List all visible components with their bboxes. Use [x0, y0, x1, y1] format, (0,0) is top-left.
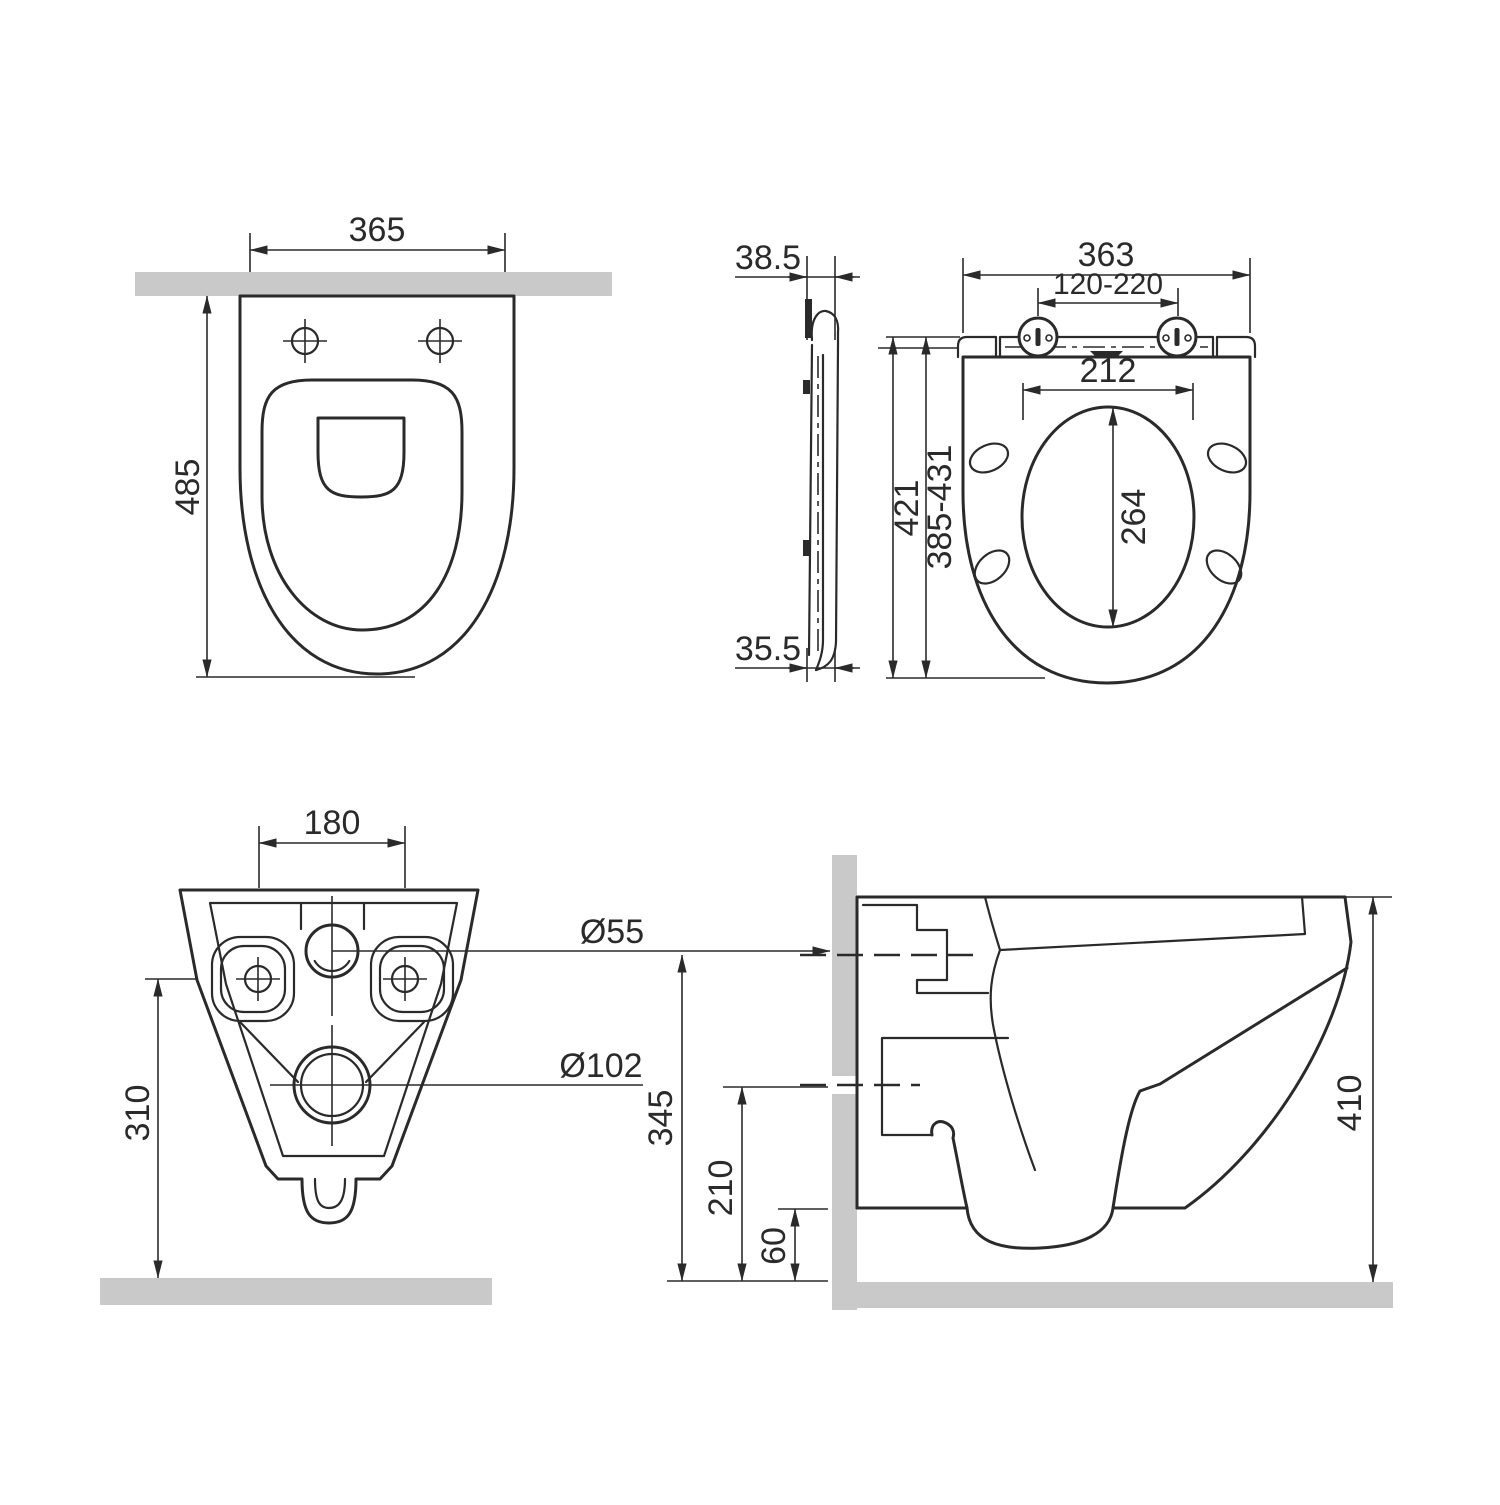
right-hinge-cap-icon: [1158, 318, 1196, 356]
dim-seat-bottom-thickness: 35.5: [735, 630, 860, 682]
drawing-canvas: 365 485 38.5: [0, 0, 1500, 1500]
floor-surface-left: [100, 1278, 492, 1305]
dim-adjustable-length-label: 385-431: [921, 445, 959, 570]
dim-outlet-axis-height-label: 210: [702, 1160, 740, 1217]
left-fixing-point-icon: [283, 319, 327, 363]
right-bolt-hole-icon: [383, 957, 427, 1001]
bowl-top-view: 365 485: [135, 211, 612, 677]
dim-height-above-floor: 310: [119, 979, 196, 1278]
dim-hinge-span-label: 120-220: [1053, 268, 1163, 301]
side-front-underside: [1113, 897, 1351, 1208]
dim-seat-bottom-thickness-label: 35.5: [735, 630, 801, 668]
seat-top-view: 363 120-220: [878, 236, 1255, 683]
lid-recess-oval: [1022, 407, 1194, 627]
dim-opening-depth-label: 264: [1115, 489, 1153, 546]
hinge-profile: [812, 311, 838, 344]
seat-side-profile-view: 38.5 35.5: [735, 239, 860, 682]
trap-outline: [932, 968, 1347, 1248]
dim-seat-top-thickness-label: 38.5: [735, 239, 801, 277]
left-hinge-cap-icon: [1019, 318, 1057, 356]
dim-inlet-axis-height-label: 345: [642, 1090, 680, 1147]
left-bolt-hole-icon: [236, 957, 280, 1001]
lid-outer-edge: [816, 344, 838, 670]
dim-seat-top-thickness: 38.5: [735, 239, 860, 340]
bowl-back-wall: [985, 897, 1035, 1170]
rim-section-lines: [1000, 897, 1305, 950]
dim-fixing-centres-label: 180: [304, 804, 361, 842]
dim-hinge-span: 120-220: [1038, 268, 1178, 316]
dim-overall-height: 410: [1331, 897, 1373, 1282]
dim-overall-height-label: 410: [1331, 1075, 1369, 1132]
right-hinge-tab: [1217, 337, 1255, 357]
foot-inner-arc: [315, 1179, 345, 1208]
right-fixing-point-icon: [418, 319, 462, 363]
dim-inlet-axis-height: 345: [642, 955, 682, 1281]
dim-overall-depth: 485: [169, 296, 415, 677]
technical-drawing-page: 365 485 38.5: [0, 0, 1500, 1500]
dim-overall-depth-label: 485: [169, 459, 207, 516]
dim-underside-clearance-label: 60: [755, 1227, 793, 1265]
bowl-back-view: 180 Ø55: [100, 804, 830, 1305]
dim-overall-width-label: 365: [349, 211, 406, 249]
dim-overall-width: 365: [250, 211, 505, 272]
left-hinge-tab: [958, 337, 996, 357]
lid-inner-edge: [816, 355, 823, 670]
dim-underside-clearance: 60: [755, 1209, 828, 1281]
dim-fixing-centres: 180: [259, 804, 405, 888]
bowl-side-section-view: 345 210 60 410: [642, 855, 1393, 1310]
seat-bumper-upper: [803, 380, 810, 394]
wall-surface: [135, 272, 612, 296]
outlet-hole: Ø102: [270, 1025, 643, 1146]
seat-bumper-lower: [803, 540, 810, 556]
bumper-pad: [965, 438, 1012, 478]
dim-height-above-floor-label: 310: [119, 1085, 157, 1142]
dim-opening-depth: 264: [1113, 408, 1153, 627]
dim-opening-width-label: 212: [1080, 352, 1137, 390]
water-area-outline: [318, 418, 404, 497]
inlet-duct-section: [863, 905, 988, 993]
dim-outlet-dia-label: Ø102: [559, 1047, 642, 1085]
back-body-outline: [180, 890, 478, 1223]
bowl-outline: [240, 296, 514, 674]
dim-inlet-dia-label: Ø55: [580, 913, 644, 951]
floor-surface-right: [857, 1282, 1393, 1308]
dim-opening-width: 212: [1023, 352, 1193, 420]
bumper-pad: [1203, 438, 1250, 478]
bumper-pad: [1200, 544, 1247, 590]
outlet-duct-section: [882, 1038, 1008, 1135]
